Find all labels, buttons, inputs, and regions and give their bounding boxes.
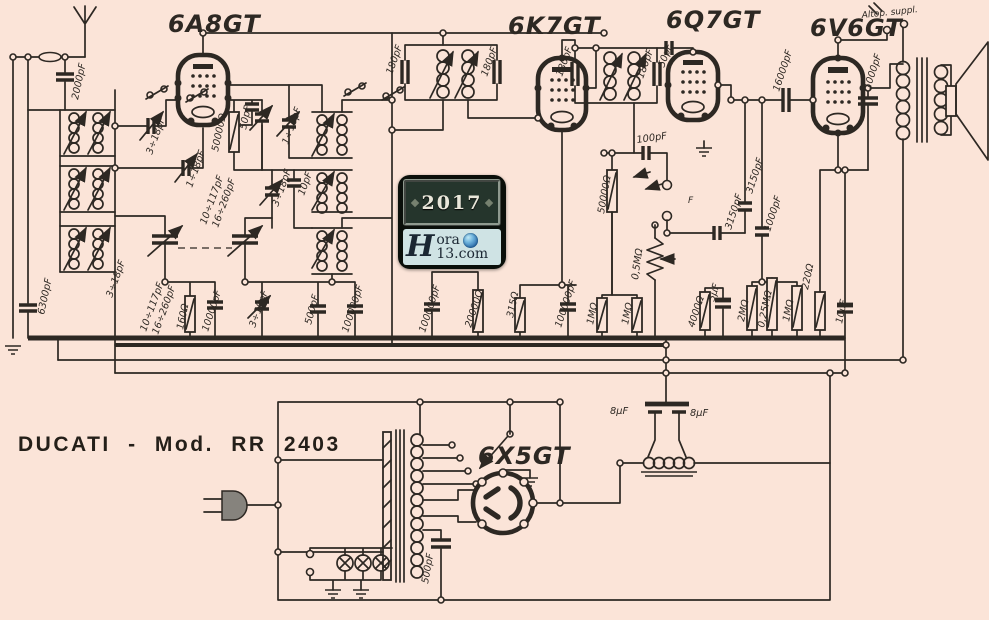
ground-bus — [5, 338, 903, 373]
component-label: 6300pF — [36, 277, 54, 316]
component-label: 3150pF — [744, 156, 766, 195]
ornament-diamond-left — [410, 198, 418, 206]
watermark-year: 2017 — [422, 192, 483, 214]
schematic-page: 6A8GT6K7GT6Q7GT6V6GT6X5GT2000pF6300pF3÷1… — [0, 0, 989, 620]
watermark-year-plate: 2017 — [403, 179, 501, 226]
tuning-gang — [115, 216, 272, 282]
component-label: 50pF — [656, 42, 675, 69]
tube-label: 6V6GT — [810, 14, 903, 42]
component-label: 100pF — [636, 131, 668, 146]
component-label: 0,5MΩ — [630, 247, 645, 280]
watermark-logo-initial: H — [406, 234, 434, 260]
component-label: 100000pF — [340, 283, 366, 334]
tube-6v6gt — [810, 55, 867, 137]
tube-label: 6A8GT — [168, 10, 261, 38]
component-label: 8µF — [690, 408, 708, 419]
watermark-badge: 2017 H ora 13.com — [398, 175, 506, 269]
circuit-drawing: 6A8GT6K7GT6Q7GT6V6GT6X5GT2000pF6300pF3÷1… — [0, 0, 989, 620]
tube-label: 6K7GT — [508, 12, 601, 40]
component-label: 500pF — [303, 293, 322, 326]
ornament-diamond-right — [485, 198, 493, 206]
component-label: 1000pF — [862, 52, 884, 91]
component-label: 220Ω — [800, 262, 816, 290]
component-label: 16000pF — [771, 48, 795, 93]
component-label: F — [688, 196, 694, 206]
power-section — [204, 345, 830, 600]
model-title: DUCATI - Mod. RR 2403 — [18, 433, 341, 457]
component-label: 10000pF — [200, 288, 224, 333]
output-stage — [815, 3, 908, 338]
component-label: 50000Ω — [210, 112, 229, 153]
watermark-logo-domain: 13.com — [436, 248, 488, 261]
speaker — [946, 42, 988, 160]
component-label: 1000pF — [762, 194, 784, 233]
tube-label: 6Q7GT — [666, 6, 761, 34]
component-label: 2000pF — [70, 62, 88, 101]
component-labels: 6A8GT6K7GT6Q7GT6V6GT6X5GT2000pF6300pF3÷1… — [36, 5, 918, 584]
component-label: 8µF — [610, 406, 628, 417]
component-label: 50pF — [238, 104, 254, 130]
component-label: 10pF — [296, 170, 315, 197]
if-transformer-1 — [392, 45, 538, 130]
tube-label: 6X5GT — [478, 442, 571, 470]
component-label: 3÷18pF — [104, 258, 128, 299]
component-label: 10µF — [834, 298, 850, 324]
tube-6q7gt — [665, 49, 722, 121]
output-transformer — [897, 58, 952, 360]
watermark-logo: H ora 13.com — [403, 229, 501, 265]
component-label: 180pF — [479, 45, 500, 78]
mains-plug-icon — [222, 491, 247, 520]
